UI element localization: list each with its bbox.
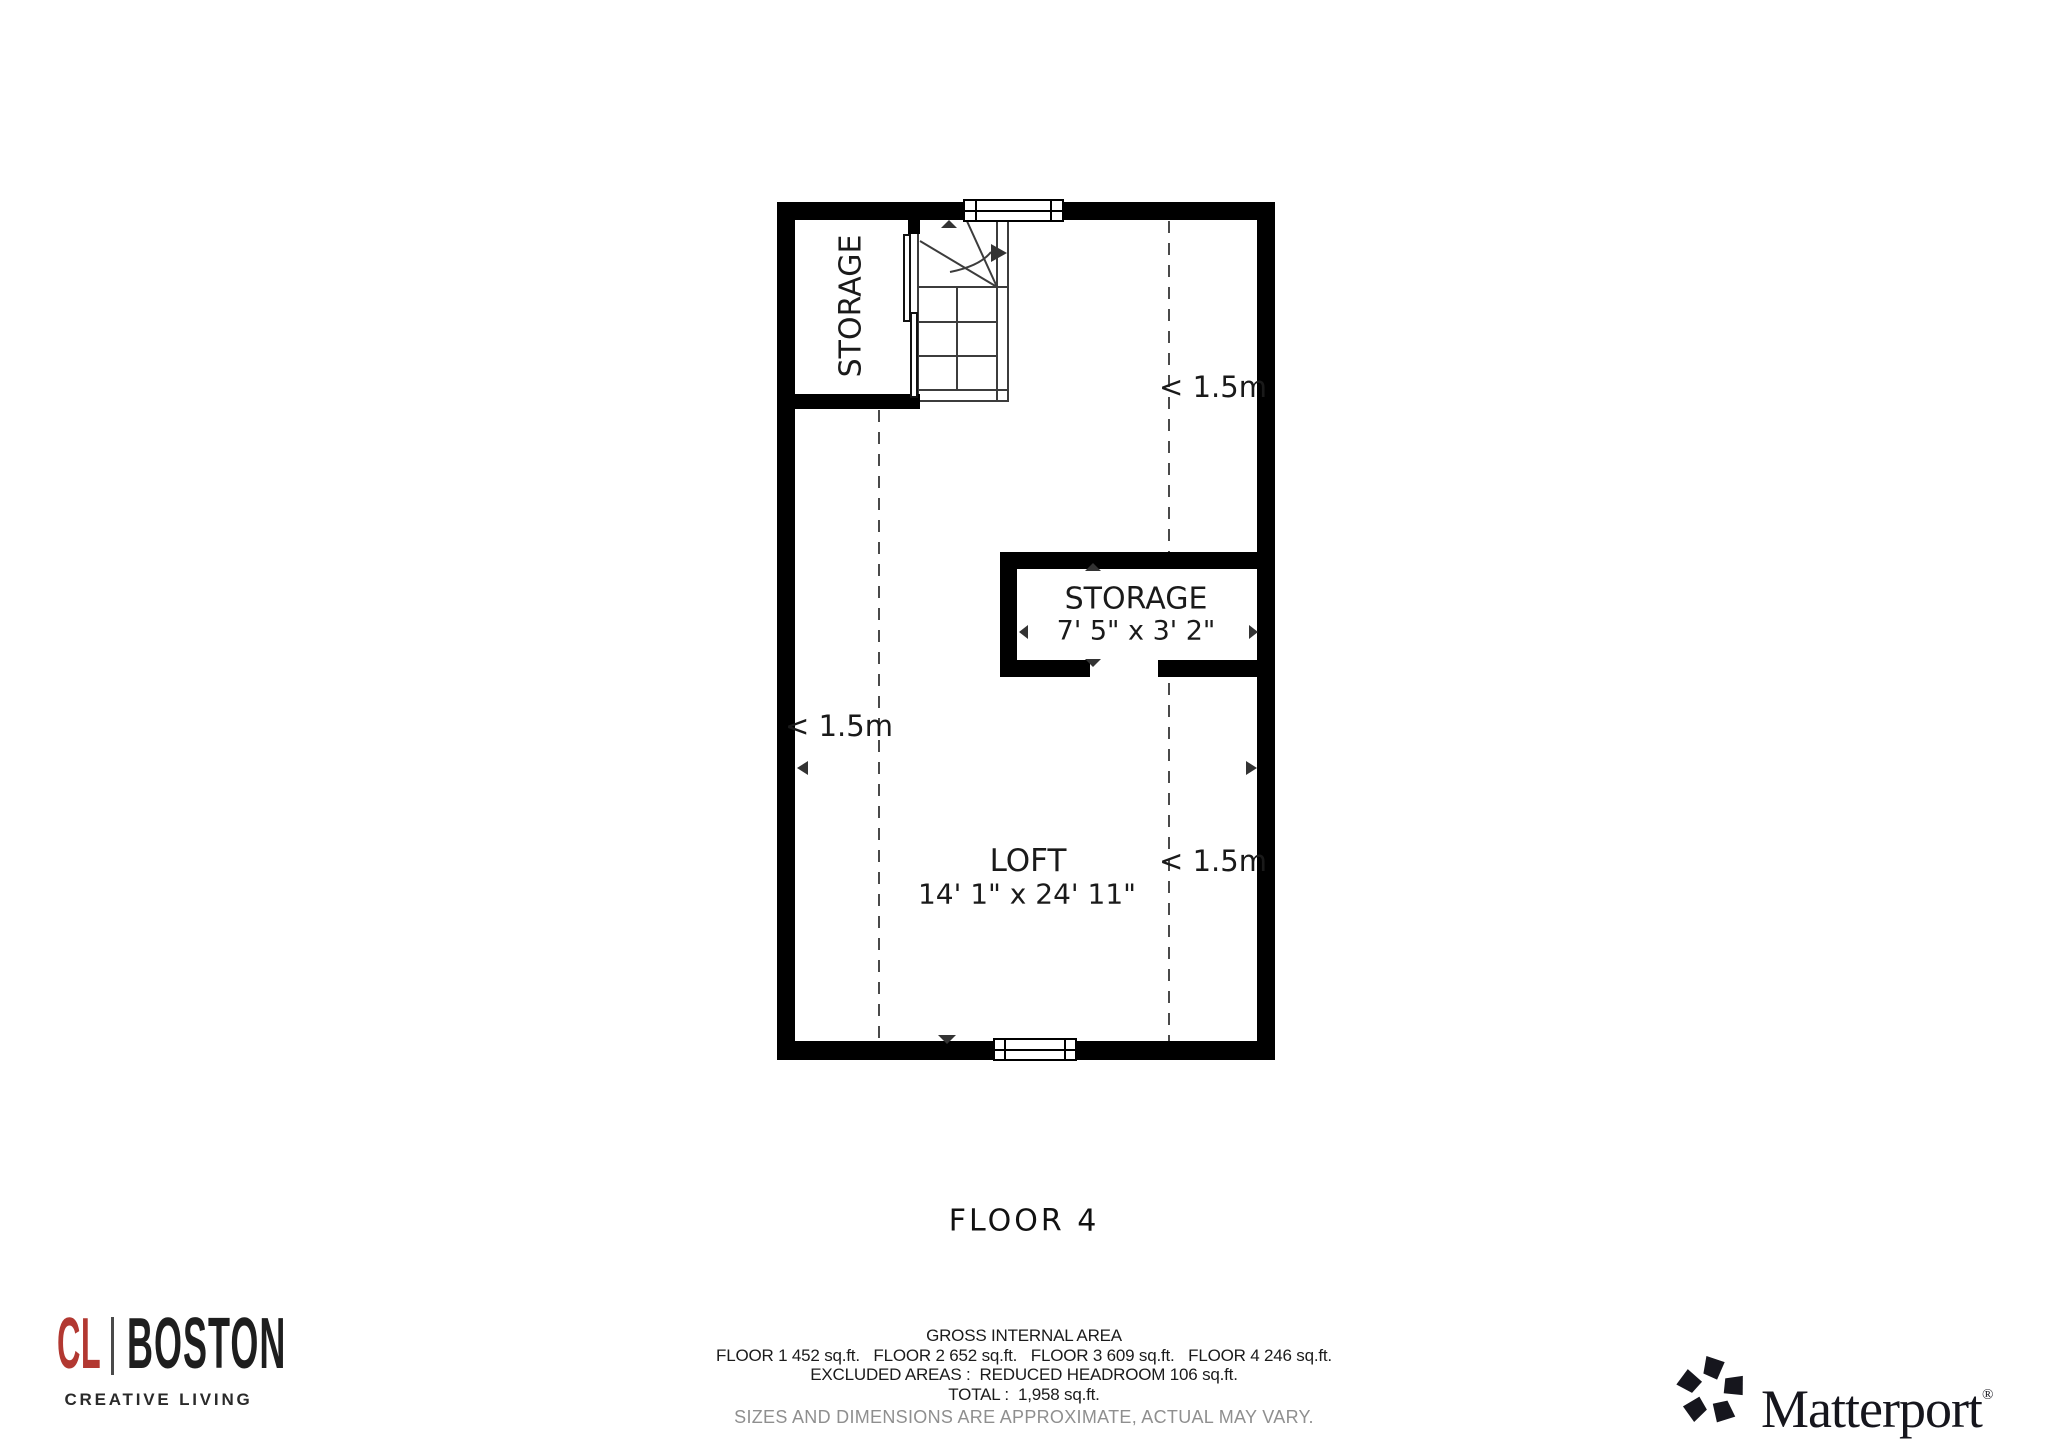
cl-monogram: CL — [57, 1314, 101, 1374]
wall-bottom-right-segment — [1075, 1041, 1275, 1060]
wall-bottom-left-segment — [777, 1041, 995, 1060]
headroom-label-left: < 1.5m — [785, 709, 893, 743]
dim-arrow-down-icon — [938, 1035, 956, 1044]
storage-mid-top-wall — [1000, 552, 1257, 569]
floor-areas-line: FLOOR 1 452 sq.ft. FLOOR 2 652 sq.ft. FL… — [716, 1346, 1332, 1366]
matterport-pinwheel-icon — [1673, 1352, 1749, 1430]
window-glass-line — [965, 210, 1062, 212]
gross-internal-area-heading: GROSS INTERNAL AREA — [716, 1326, 1332, 1346]
dim-arrow-left-icon — [797, 761, 808, 775]
dim-arrow-right-icon — [1246, 761, 1257, 775]
matterport-name-text: Matterport — [1761, 1379, 1982, 1439]
excluded-areas-line: EXCLUDED AREAS : REDUCED HEADROOM 106 sq… — [716, 1365, 1332, 1385]
cl-boston-logo: CL BOSTON CREATIVE LIVING — [57, 1314, 262, 1409]
sliding-door-panel-upper — [903, 234, 911, 322]
boston-wordmark: BOSTON — [127, 1314, 286, 1374]
wall-top-right-segment — [1062, 202, 1275, 220]
stair-direction-arrow-icon — [991, 244, 1007, 262]
window-jamb-right — [1064, 1040, 1066, 1059]
footer-area-summary: GROSS INTERNAL AREA FLOOR 1 452 sq.ft. F… — [716, 1326, 1332, 1428]
window-jamb-left — [1004, 1040, 1006, 1059]
window-top-icon — [963, 199, 1064, 222]
headroom-label-top-right: < 1.5m — [1159, 370, 1267, 404]
sliding-door-panel-lower — [910, 312, 918, 398]
floor-plan-page: STORAGE STORAGE 7' 5" x 3' 2" LOFT 14' 1… — [0, 0, 2048, 1448]
matterport-wordmark: Matterport® — [1761, 1368, 1993, 1436]
window-jamb-left — [975, 201, 977, 220]
creative-living-tagline: CREATIVE LIVING — [57, 1390, 260, 1410]
storage-top-label: STORAGE — [834, 235, 869, 378]
wall-top-left-segment — [777, 202, 965, 220]
logo-divider — [111, 1317, 114, 1375]
window-bottom-icon — [993, 1038, 1077, 1061]
registered-trademark-symbol: ® — [1982, 1387, 1993, 1403]
staircase — [915, 215, 1012, 408]
storage-mid-dimensions: 7' 5" x 3' 2" — [1057, 616, 1216, 647]
disclaimer-text: SIZES AND DIMENSIONS ARE APPROXIMATE, AC… — [716, 1408, 1332, 1428]
storage-dim-arrow-down-icon — [1085, 659, 1101, 667]
storage-mid-bottom-wall-left — [1000, 660, 1090, 677]
wall-left — [777, 202, 795, 1060]
dim-arrow-up-icon — [941, 220, 957, 228]
total-area-line: TOTAL : 1,958 sq.ft. — [716, 1385, 1332, 1405]
storage-dim-arrow-right-icon — [1249, 625, 1258, 639]
floor-title: FLOOR 4 — [949, 1204, 1100, 1239]
window-glass-line — [995, 1049, 1075, 1051]
storage-mid-bottom-wall-right — [1158, 660, 1257, 677]
storage-top-bottom-wall — [777, 394, 920, 409]
wall-right — [1257, 202, 1275, 1060]
storage-mid-left-wall — [1000, 552, 1017, 677]
storage-dim-arrow-up-icon — [1085, 563, 1101, 571]
storage-dim-arrow-left-icon — [1019, 625, 1028, 639]
loft-label: LOFT — [990, 843, 1067, 879]
loft-dimensions: 14' 1" x 24' 11" — [918, 878, 1136, 911]
window-jamb-right — [1050, 201, 1052, 220]
storage-mid-label: STORAGE — [1065, 582, 1208, 617]
storage-top-door-jamb — [908, 218, 920, 234]
headroom-label-mid-right: < 1.5m — [1159, 844, 1267, 878]
